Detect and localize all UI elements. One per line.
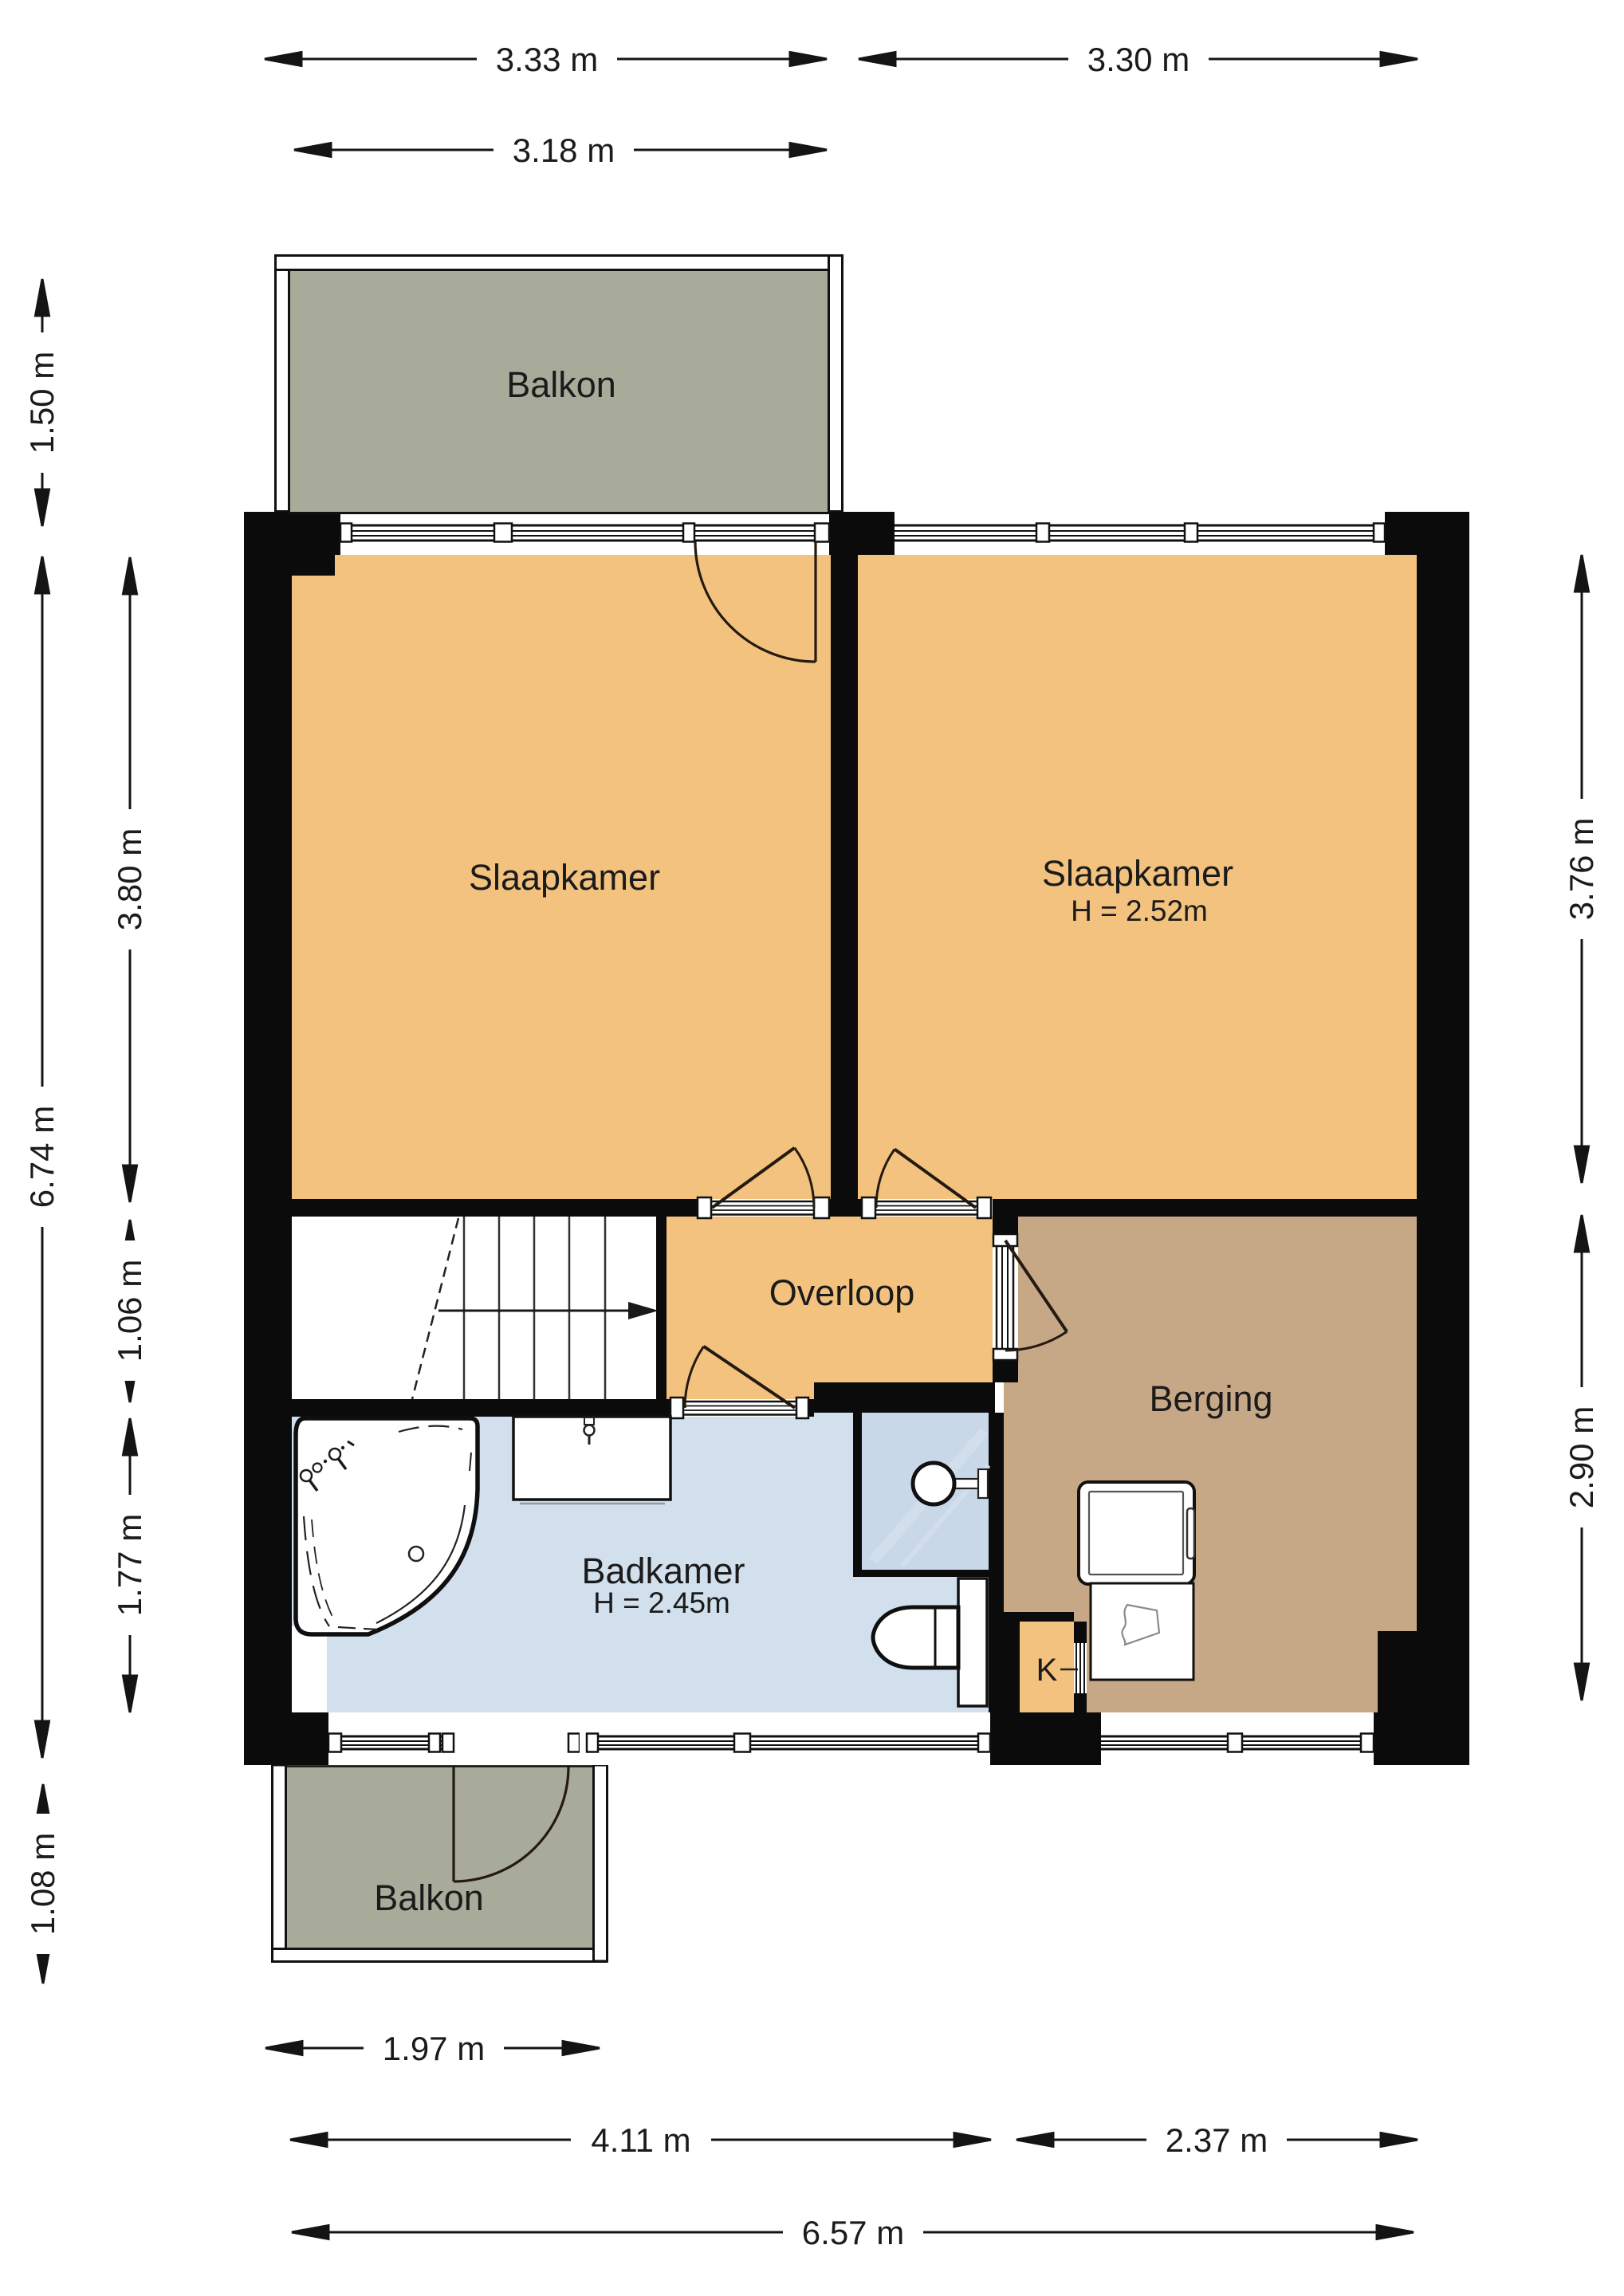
svg-text:3.33 m: 3.33 m (496, 41, 598, 78)
svg-text:3.30 m: 3.30 m (1087, 41, 1189, 78)
svg-text:1.77 m: 1.77 m (111, 1514, 148, 1616)
svg-text:Balkon: Balkon (506, 364, 616, 405)
svg-text:1.97 m: 1.97 m (383, 2030, 485, 2067)
svg-text:Badkamer: Badkamer (581, 1551, 745, 1591)
svg-text:K: K (1036, 1653, 1058, 1688)
svg-text:Overloop: Overloop (769, 1272, 915, 1313)
svg-text:1.08 m: 1.08 m (24, 1833, 61, 1935)
svg-text:H = 2.45m: H = 2.45m (593, 1586, 730, 1619)
svg-text:3.80 m: 3.80 m (111, 828, 148, 930)
svg-text:2.90 m: 2.90 m (1563, 1406, 1600, 1508)
svg-text:3.18 m: 3.18 m (513, 132, 615, 169)
svg-text:Slaapkamer: Slaapkamer (469, 857, 660, 898)
svg-text:4.11 m: 4.11 m (591, 2121, 690, 2159)
svg-text:1.06 m: 1.06 m (111, 1260, 148, 1362)
svg-text:1.50 m: 1.50 m (23, 352, 61, 454)
svg-text:3.76 m: 3.76 m (1563, 818, 1600, 920)
svg-text:H = 2.52m: H = 2.52m (1071, 894, 1208, 927)
svg-text:Slaapkamer: Slaapkamer (1042, 853, 1233, 894)
svg-text:2.37 m: 2.37 m (1166, 2121, 1268, 2159)
svg-text:6.74 m: 6.74 m (23, 1106, 61, 1208)
svg-text:Balkon: Balkon (374, 1877, 484, 1918)
svg-text:6.57 m: 6.57 m (802, 2214, 904, 2251)
svg-text:Berging: Berging (1149, 1378, 1272, 1419)
